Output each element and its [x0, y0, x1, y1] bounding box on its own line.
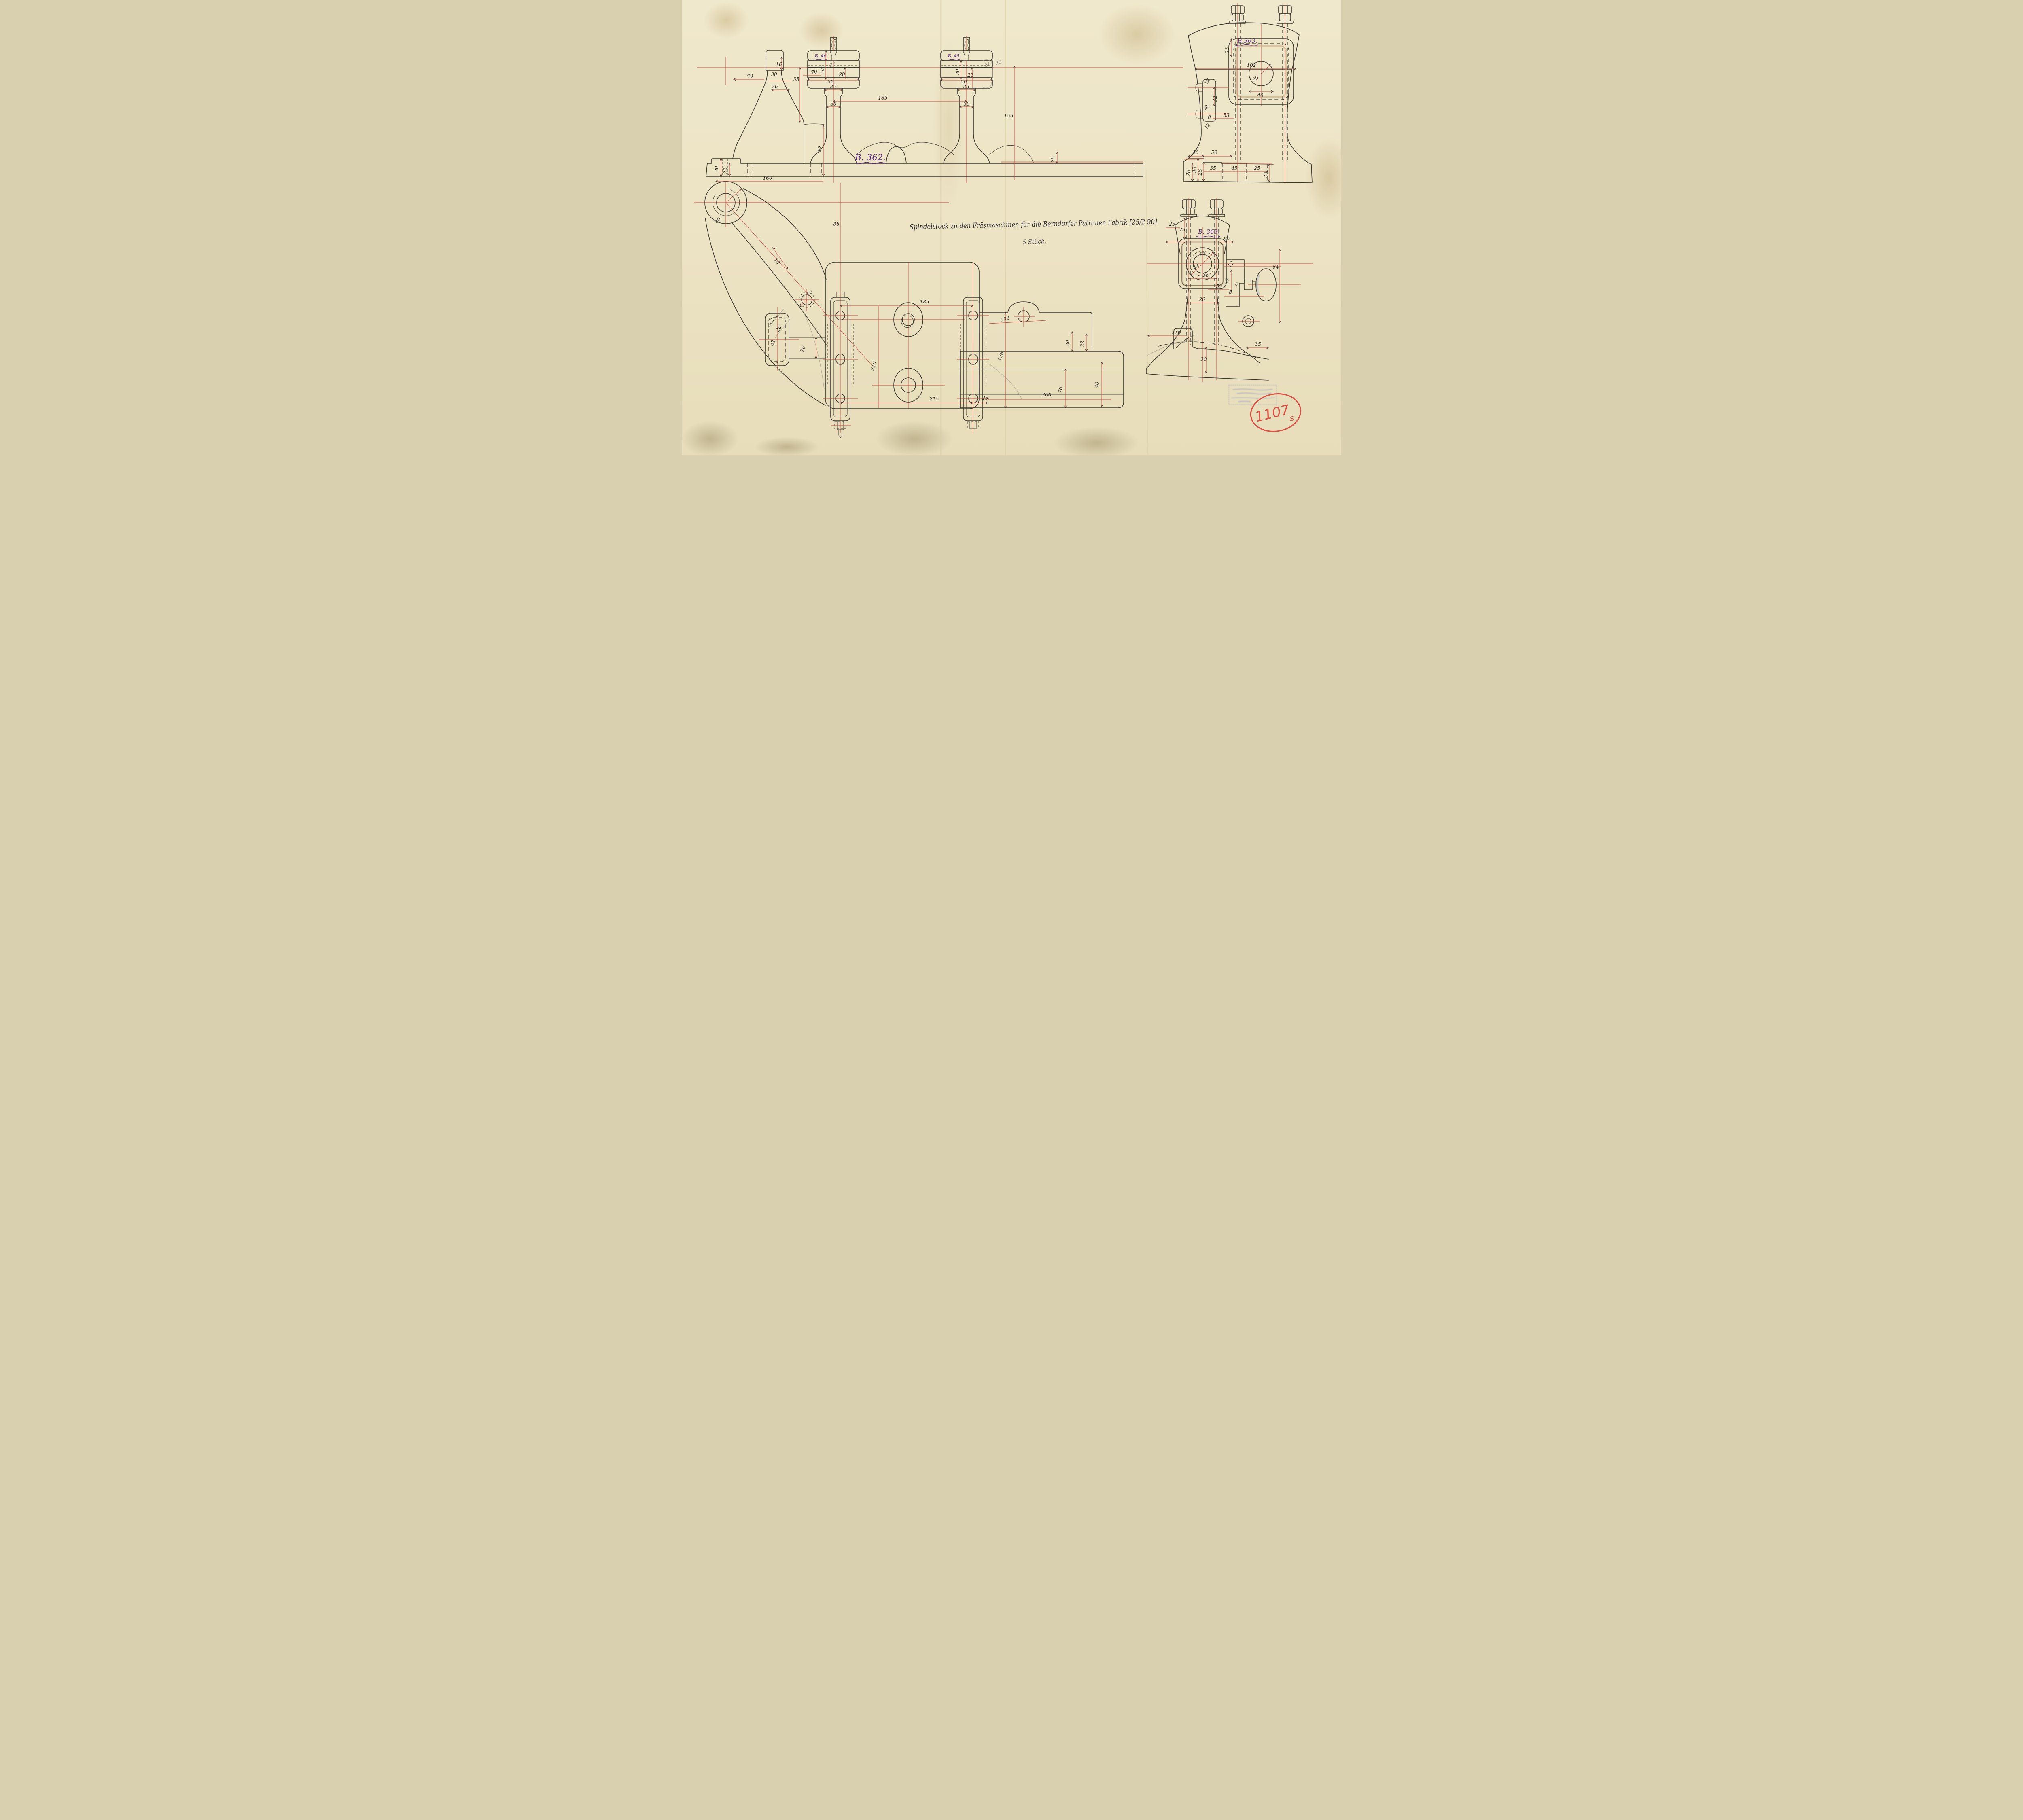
dimension-label: 23: [1179, 227, 1185, 233]
dimension-label: 50: [1211, 150, 1217, 155]
dimension-label: 53: [1223, 112, 1230, 118]
dimension-label: 23: [1224, 47, 1230, 54]
part-label-b45: B. 45.: [948, 53, 961, 59]
dimension-label: 16: [776, 61, 782, 67]
dimension-label: 40: [1192, 150, 1199, 155]
dimension-label: 32: [1212, 95, 1218, 102]
dimension-label: 6: [1235, 282, 1238, 287]
dimension-label: 35: [1210, 165, 1216, 171]
dimension-label: 20: [838, 72, 845, 77]
drawing-label-b362: B. 362.: [855, 153, 886, 162]
dimension-label: 30: [714, 166, 719, 172]
dimension-label: 55: [816, 146, 822, 152]
dimension-label: 26: [1050, 156, 1056, 163]
dimension-label: 70: [1185, 169, 1192, 176]
dimension-label: 35: [963, 84, 969, 89]
dimension-label: 30: [1200, 356, 1207, 362]
dimension-label: 35: [1202, 272, 1209, 278]
dimension-label: 160: [763, 175, 772, 181]
dimension-label: 53: [1216, 284, 1222, 289]
dimension-label: 26: [771, 84, 778, 89]
dimension-label: 25: [820, 66, 825, 73]
dimension-label: 25: [1168, 221, 1175, 227]
dimension-label: 26: [1198, 297, 1205, 302]
dimension-label: 30: [830, 101, 837, 107]
dimension-label: 155: [1004, 113, 1014, 119]
dimension-label: 45: [1231, 165, 1237, 171]
dimension-label: 23: [967, 72, 974, 78]
dimension-label: 30: [955, 69, 961, 75]
dimension-label: 185: [920, 299, 929, 305]
drawing-label-b363-side: B. 363.: [1198, 228, 1220, 235]
drawing-subtitle: 5 Stück.: [1022, 238, 1046, 246]
dimension-label: 25: [1253, 165, 1260, 171]
dimension-label: 102: [1247, 62, 1256, 68]
dimension-label: 30: [1192, 167, 1197, 173]
dimension-label: 215: [929, 396, 939, 402]
dimension-label: 30: [1224, 278, 1230, 285]
dimension-label: 8: [1208, 114, 1211, 120]
dimension-label: 35: [830, 84, 836, 89]
dimension-label: 35: [793, 76, 799, 82]
dimension-label: 185: [878, 95, 888, 101]
dimension-label: 42: [770, 339, 776, 347]
dimension-label: 64: [1272, 264, 1279, 270]
dimension-label: 22: [1263, 172, 1268, 178]
dimension-label: 200: [1042, 392, 1052, 398]
dimension-label: 30: [1065, 340, 1071, 346]
dimension-label: 88: [833, 221, 840, 227]
dimension-label: 40: [1094, 381, 1101, 389]
dimension-label: 26: [1197, 169, 1203, 176]
dimension-label: 30: [771, 72, 777, 77]
dimension-label: 8: [1229, 289, 1232, 295]
dimension-label: 25: [982, 395, 988, 401]
dimension-label: 35: [1255, 341, 1261, 347]
dimension-label: 40: [1257, 93, 1264, 98]
dimension-label: 22: [723, 167, 728, 174]
blueprint-sheet: B. 46. B. 45. B. 362. 16 30 26 70 35 70 …: [682, 0, 1341, 455]
dimension-label: 210: [1171, 330, 1181, 335]
dimension-label: 22: [1079, 341, 1085, 347]
dimension-label: 70: [1057, 386, 1064, 393]
dimension-label: 30: [963, 101, 970, 107]
